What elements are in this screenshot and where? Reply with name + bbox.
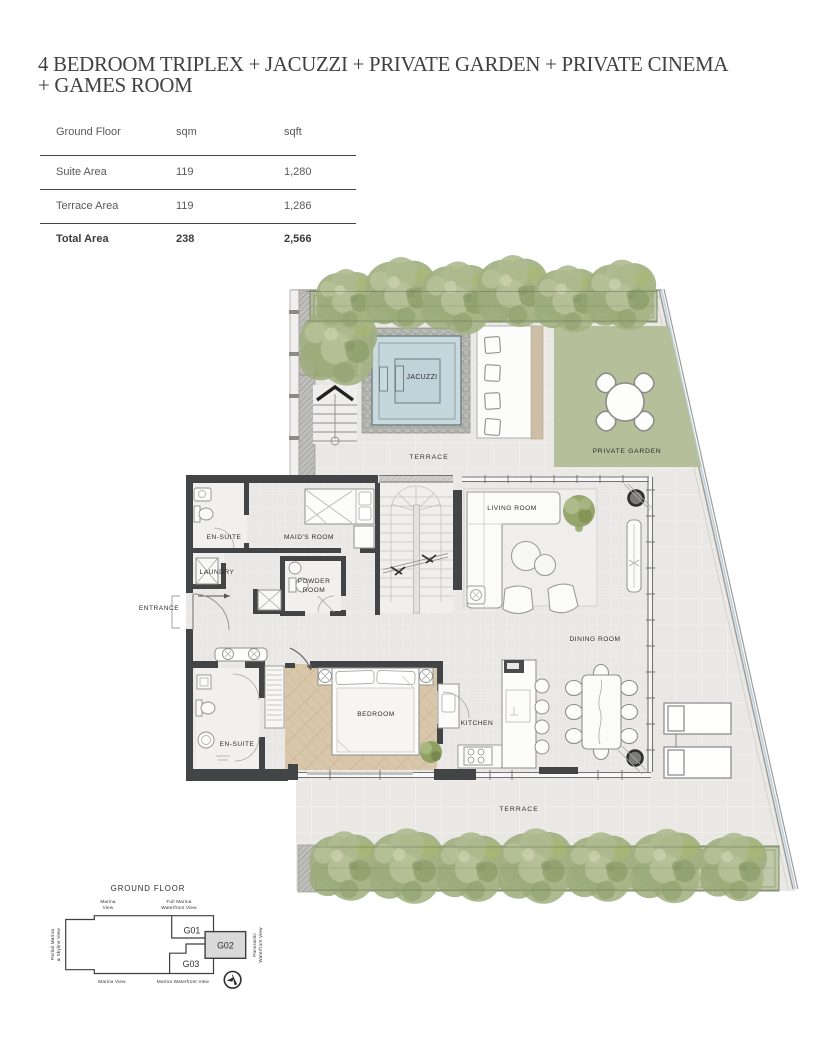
svg-text:LAUNDRY: LAUNDRY — [200, 569, 235, 576]
svg-text:& Skyline View: & Skyline View — [56, 928, 61, 962]
svg-text:GROUND FLOOR: GROUND FLOOR — [111, 884, 185, 893]
svg-text:Marina View: Marina View — [98, 979, 126, 984]
svg-text:ENTRANCE: ENTRANCE — [139, 605, 179, 612]
svg-text:G02: G02 — [217, 941, 234, 951]
svg-text:Marina Waterfront View: Marina Waterfront View — [157, 979, 210, 984]
svg-text:DINING ROOM: DINING ROOM — [570, 636, 621, 643]
svg-text:PRIVATE GARDEN: PRIVATE GARDEN — [593, 448, 662, 455]
svg-text:Partial Marina: Partial Marina — [50, 929, 55, 960]
svg-text:Waterfront View: Waterfront View — [161, 905, 197, 910]
svg-text:EN-SUITE: EN-SUITE — [220, 741, 255, 748]
svg-text:KITCHEN: KITCHEN — [461, 720, 493, 727]
svg-text:View: View — [103, 905, 114, 910]
svg-text:ROOM: ROOM — [303, 587, 326, 594]
svg-text:LIVING ROOM: LIVING ROOM — [487, 505, 536, 512]
svg-text:TERRACE: TERRACE — [499, 806, 538, 813]
svg-text:JACUZZI: JACUZZI — [407, 374, 438, 381]
svg-text:MAID'S ROOM: MAID'S ROOM — [284, 534, 334, 541]
svg-text:G03: G03 — [183, 959, 200, 969]
svg-text:Waterfront View: Waterfront View — [258, 927, 263, 963]
svg-text:BEDROOM: BEDROOM — [357, 711, 395, 718]
svg-text:TERRACE: TERRACE — [409, 454, 448, 461]
svg-text:G01: G01 — [184, 926, 201, 936]
svg-text:Full Marina: Full Marina — [167, 899, 192, 904]
svg-text:Marina: Marina — [100, 899, 115, 904]
svg-text:POWDER: POWDER — [298, 578, 331, 585]
svg-text:EN-SUITE: EN-SUITE — [207, 534, 242, 541]
svg-text:Panoramic: Panoramic — [252, 933, 257, 957]
